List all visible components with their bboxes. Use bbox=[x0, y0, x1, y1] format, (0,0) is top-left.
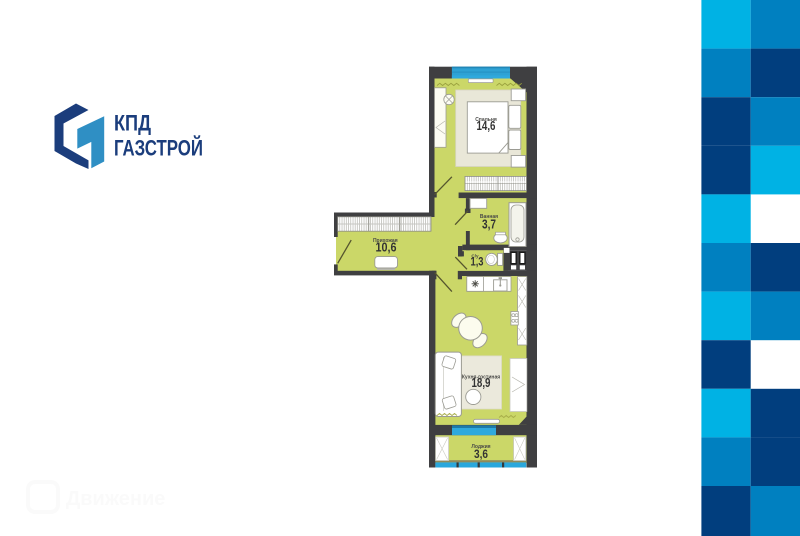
svg-text:14,6: 14,6 bbox=[477, 119, 496, 133]
svg-text:Движение: Движение bbox=[66, 488, 165, 510]
svg-text:1,3: 1,3 bbox=[471, 257, 484, 269]
svg-text:10,6: 10,6 bbox=[376, 241, 397, 255]
svg-text:КПД: КПД bbox=[114, 111, 151, 136]
svg-text:ГАЗСТРОЙ: ГАЗСТРОЙ bbox=[114, 136, 203, 161]
svg-text:18,9: 18,9 bbox=[472, 376, 491, 390]
svg-text:3,7: 3,7 bbox=[482, 218, 496, 232]
svg-text:3,6: 3,6 bbox=[474, 449, 488, 461]
